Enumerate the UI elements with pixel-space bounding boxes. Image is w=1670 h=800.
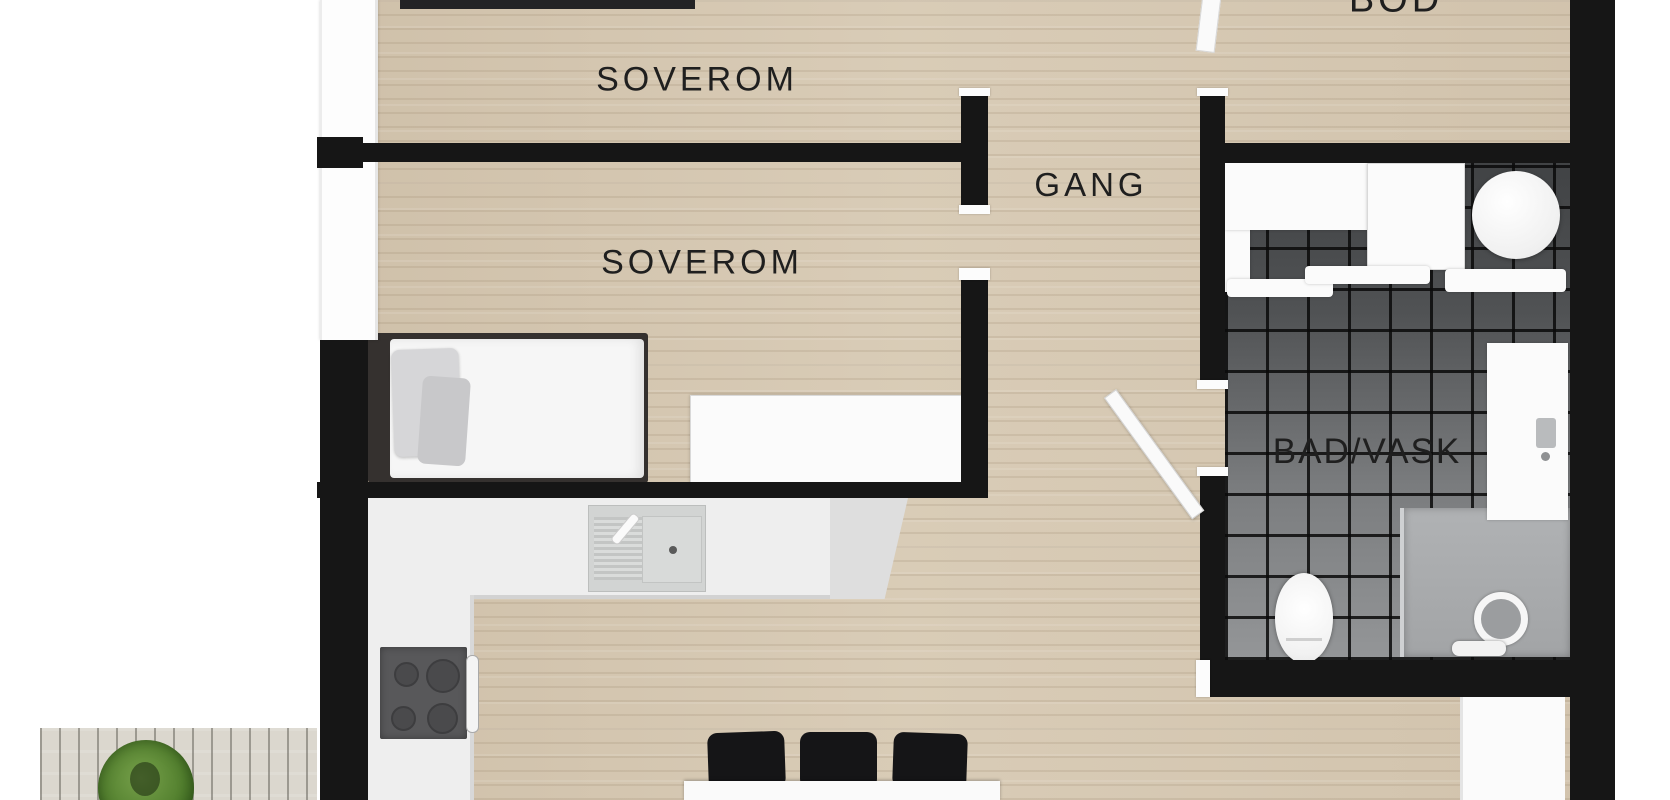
hallway-wall-lower (961, 280, 988, 498)
bathroom-ledge (1445, 269, 1566, 292)
bathroom-west-wall-lower (1200, 475, 1225, 660)
floor-plan: SOVEROM SOVEROM GANG BOD BAD/VASK (0, 0, 1670, 800)
door-jamb (1196, 660, 1210, 697)
bedroom1-label: SOVEROM (596, 61, 798, 100)
shower-fixture (1452, 641, 1506, 656)
bathroom-ledge (1305, 266, 1430, 284)
bedroom2-label: SOVEROM (601, 244, 803, 283)
sink-drainboard (594, 517, 642, 580)
hallway-wall-upper (961, 95, 988, 205)
door-jamb (959, 205, 990, 214)
bedroom-divider-pier (317, 137, 363, 168)
stove-burner (394, 662, 419, 687)
storage-label: BOD (1349, 0, 1443, 22)
bathroom-counter (1225, 163, 1367, 230)
left-outer-wall-upper (320, 0, 378, 340)
bedroom2-south-wall (317, 482, 988, 498)
sink-drain (669, 546, 677, 554)
washing-machine-lid (1472, 171, 1560, 259)
bed-pillow (417, 375, 471, 466)
hallway-label: GANG (1034, 166, 1147, 204)
door-jamb (959, 88, 990, 96)
vanity-drain (1541, 452, 1550, 461)
door-jamb (959, 268, 990, 280)
dining-table (684, 781, 1000, 800)
stove-burner (426, 659, 460, 693)
bedroom2-dresser (690, 395, 962, 484)
vanity-faucet (1536, 418, 1556, 448)
washing-machine (1367, 163, 1465, 270)
plant-center-shadow (130, 762, 160, 796)
bathroom-south-wall (1210, 660, 1615, 697)
left-outer-wall-lower (320, 340, 368, 800)
door-jamb (1197, 467, 1228, 476)
stove-burner (427, 703, 458, 734)
door-jamb (1197, 380, 1228, 389)
bedroom1-furniture-edge (400, 0, 695, 9)
toilet (1275, 573, 1333, 663)
stove-burner (391, 706, 416, 731)
bathroom-west-wall-upper (1200, 95, 1225, 388)
bedroom-divider-wall (363, 143, 961, 162)
bottom-right-white-unit (1460, 697, 1565, 800)
oven-handle (466, 655, 479, 733)
shower-drain-head (1474, 592, 1528, 646)
bathroom-north-wall (1225, 143, 1570, 163)
toilet-seat-line (1286, 638, 1322, 641)
door-jamb (1197, 88, 1228, 96)
bathroom-label: BAD/VASK (1273, 432, 1461, 472)
